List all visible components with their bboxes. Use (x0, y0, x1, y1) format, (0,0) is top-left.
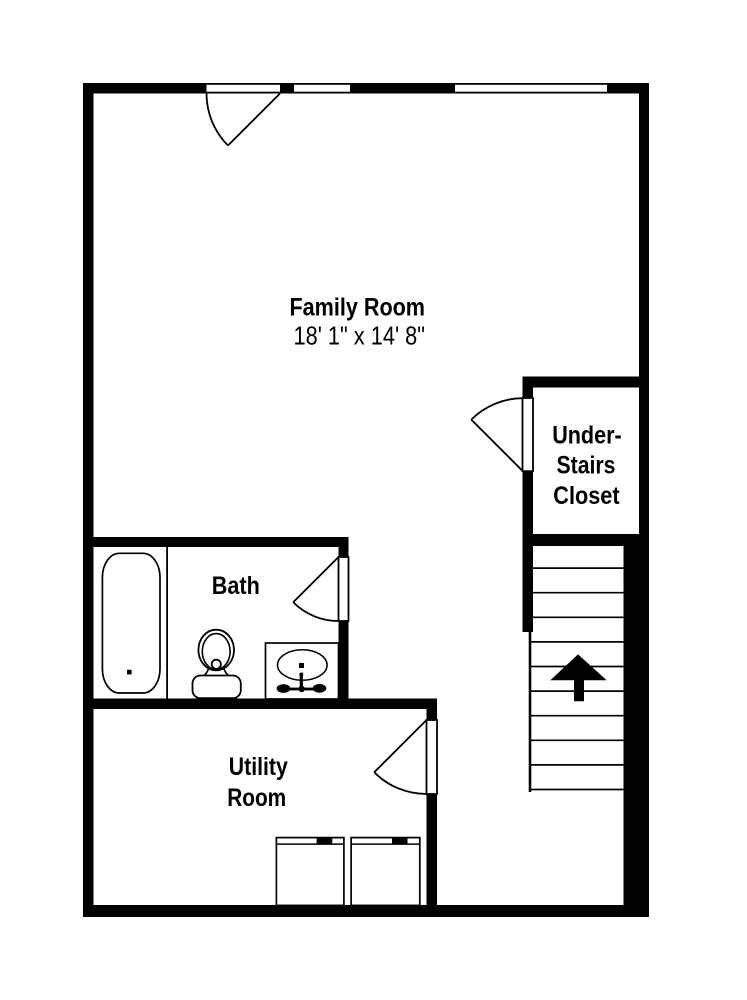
svg-text:Family Room: Family Room (290, 293, 426, 321)
svg-text:Bath: Bath (212, 572, 260, 600)
svg-text:Under-: Under- (552, 422, 622, 450)
svg-text:Stairs: Stairs (557, 452, 616, 480)
svg-text:Utility: Utility (229, 753, 288, 781)
svg-text:18' 1" x 14' 8": 18' 1" x 14' 8" (294, 320, 426, 350)
svg-text:Room: Room (227, 784, 286, 812)
svg-text:Closet: Closet (553, 482, 620, 510)
